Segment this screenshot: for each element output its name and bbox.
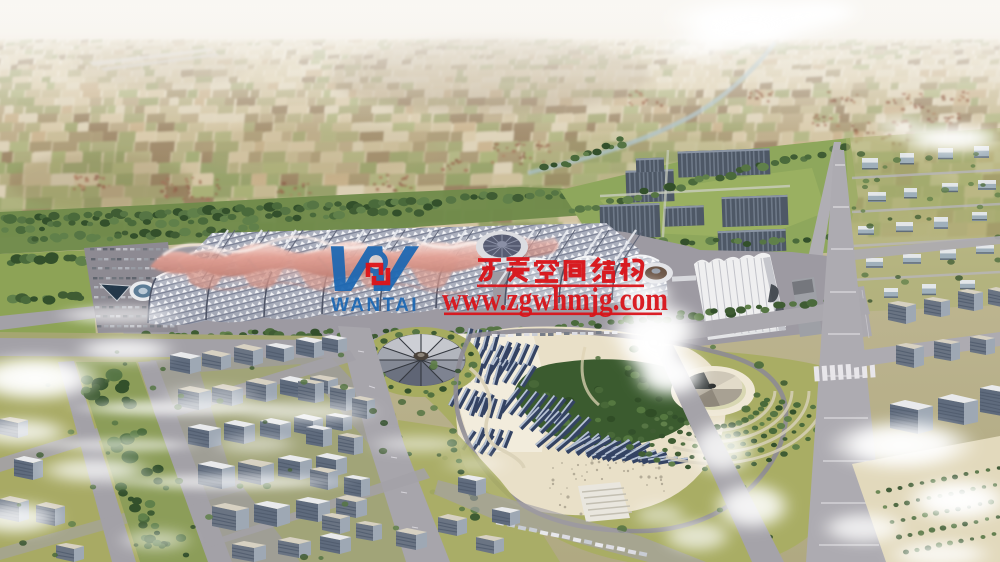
svg-text:WANTAI: WANTAI — [331, 295, 419, 316]
